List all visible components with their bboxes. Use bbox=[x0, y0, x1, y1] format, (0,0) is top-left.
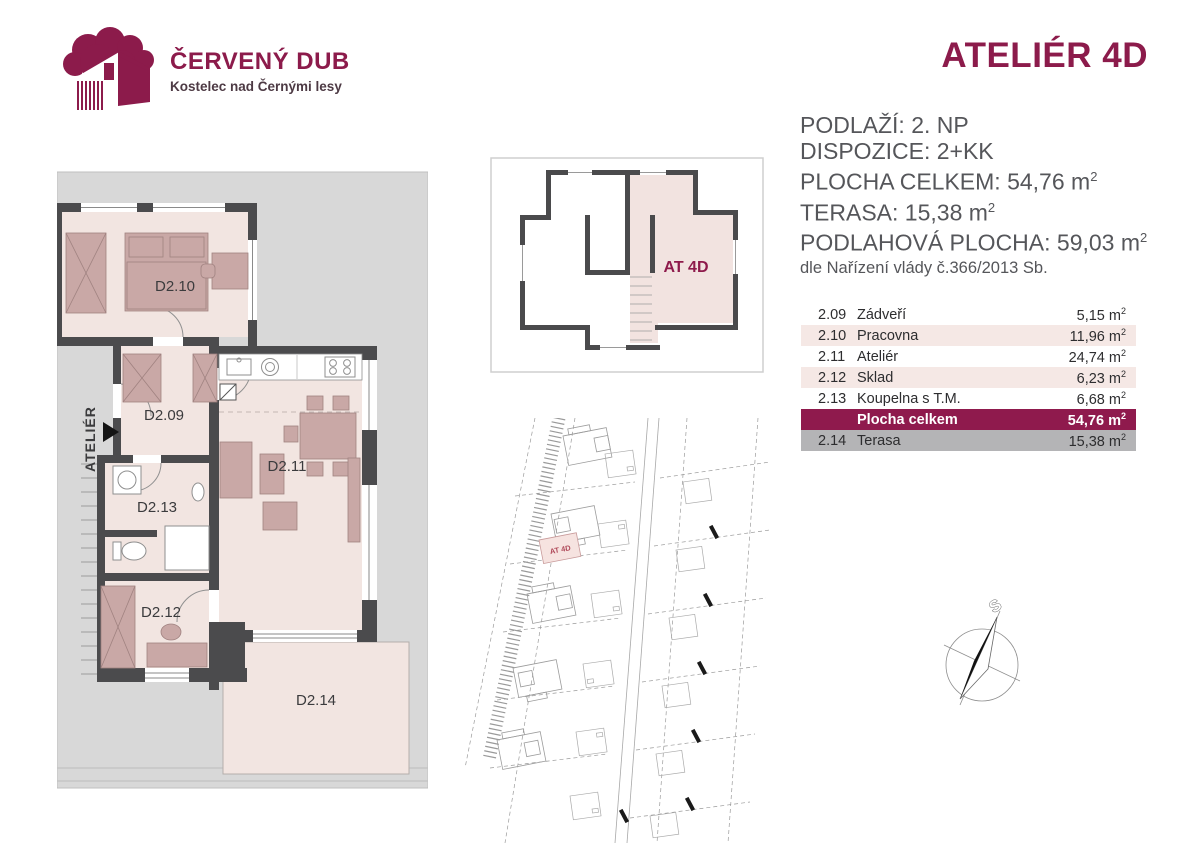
main-floorplan: D2.10 D2.09 D2.13 D2.12 D2.11 D2.14 ATEL… bbox=[57, 170, 428, 790]
site-plan: AT 4D bbox=[455, 418, 770, 843]
table-row: 2.09Zádveří 5,15 m2 bbox=[801, 304, 1136, 325]
room-label-d212: D2.12 bbox=[141, 604, 181, 621]
room-label-d210: D2.10 bbox=[155, 278, 195, 295]
overview-unit-label: AT 4D bbox=[663, 259, 708, 276]
info-regulation-note: dle Nařízení vlády č.366/2013 Sb. bbox=[800, 259, 1147, 278]
site-houses-middle bbox=[570, 450, 636, 820]
site-unit-highlight: AT 4D bbox=[539, 533, 581, 564]
info-floor: PODLAŽÍ: 2. NP bbox=[800, 112, 1147, 138]
compass: S bbox=[930, 585, 1034, 720]
room-label-d214: D2.14 bbox=[296, 692, 336, 709]
site-houses-right bbox=[650, 478, 712, 837]
info-floor-area: PODLAHOVÁ PLOCHA: 59,03 m2 bbox=[800, 225, 1147, 256]
brand-subtitle: Kostelec nad Černými lesy bbox=[170, 79, 350, 94]
room-label-d209: D2.09 bbox=[144, 407, 184, 424]
fence-icon bbox=[78, 81, 102, 110]
table-row-total: Plocha celkem 54,76 m2 bbox=[801, 409, 1136, 430]
floor-plan-sheet: ČERVENÝ DUB Kostelec nad Černými lesy AT… bbox=[0, 0, 1200, 848]
entry-direction-label: ATELIÉR bbox=[82, 406, 98, 472]
table-row: 2.14Terasa 15,38 m2 bbox=[801, 430, 1136, 451]
room-area-table: 2.09Zádveří 5,15 m2 2.10Pracovna 11,96 m… bbox=[801, 304, 1136, 451]
info-total-area: PLOCHA CELKEM: 54,76 m2 bbox=[800, 164, 1147, 195]
table-row: 2.10Pracovna 11,96 m2 bbox=[801, 325, 1136, 346]
compass-north-label: S bbox=[986, 596, 1005, 616]
info-layout: DISPOZICE: 2+KK bbox=[800, 138, 1147, 164]
table-row: 2.11Ateliér 24,74 m2 bbox=[801, 346, 1136, 367]
driveway-comb bbox=[489, 418, 559, 760]
page-title: ATELIÉR 4D bbox=[748, 36, 1148, 76]
street-lines bbox=[615, 418, 659, 843]
table-row: 2.13Koupelna s T.M. 6,68 m2 bbox=[801, 388, 1136, 409]
unit-info: PODLAŽÍ: 2. NP DISPOZICE: 2+KK PLOCHA CE… bbox=[800, 112, 1147, 278]
overview-plan: AT 4D bbox=[490, 155, 766, 385]
info-terrace-area: TERASA: 15,38 m2 bbox=[800, 195, 1147, 226]
room-label-d211: D2.11 bbox=[268, 458, 307, 475]
room-label-d213: D2.13 bbox=[137, 499, 177, 516]
parcel-number-marks bbox=[619, 525, 719, 823]
brand-logo bbox=[58, 26, 166, 110]
table-row: 2.12Sklad 6,23 m2 bbox=[801, 367, 1136, 388]
brand-name: ČERVENÝ DUB bbox=[170, 48, 350, 76]
parcel-boundaries bbox=[465, 418, 770, 843]
